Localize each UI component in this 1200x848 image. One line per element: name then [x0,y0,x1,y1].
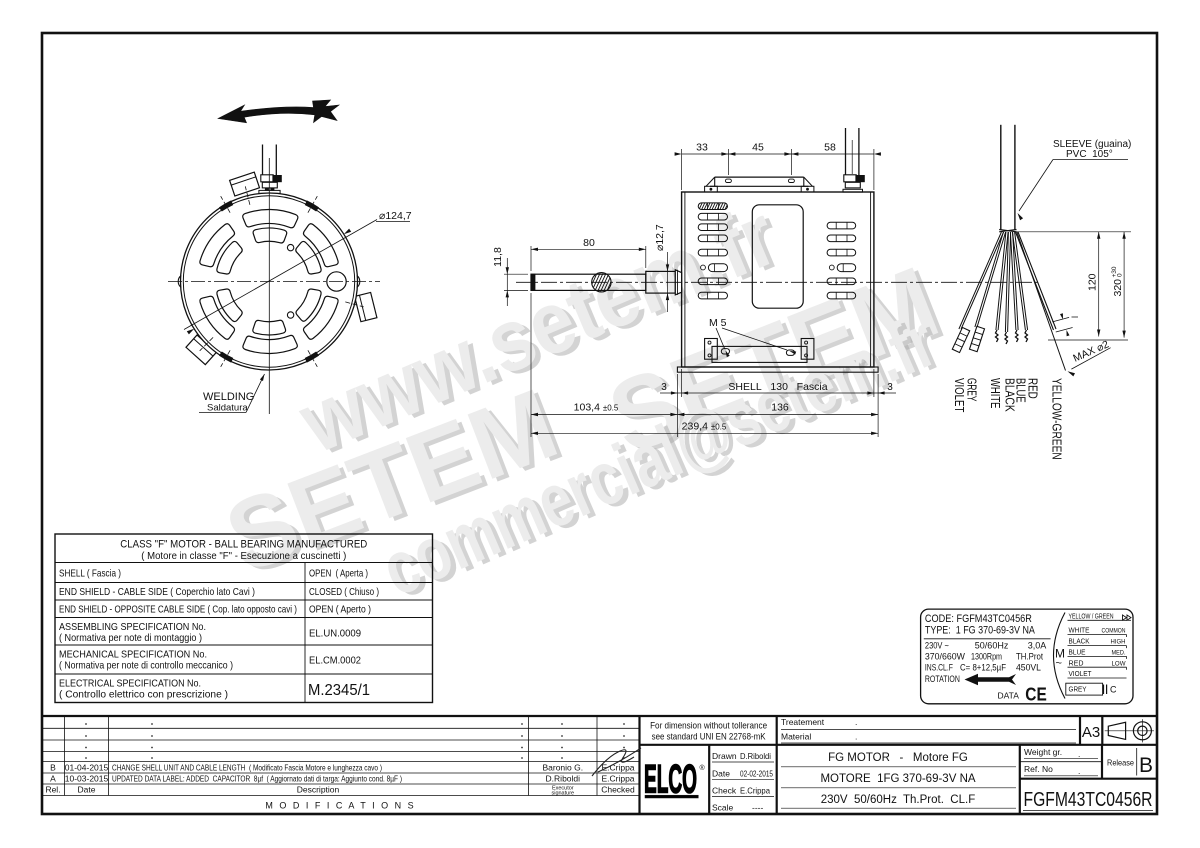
svg-text:FGFM43TC0456R: FGFM43TC0456R [1024,788,1153,811]
svg-text:( Normativa per note di contro: ( Normativa per note di controllo meccan… [59,660,233,672]
svg-text:3,0A: 3,0A [1028,641,1047,651]
svg-text:3: 3 [661,382,667,393]
svg-text:GREY: GREY [1069,685,1087,694]
svg-text:Saldatura: Saldatura [207,403,248,414]
svg-text:BLACK: BLACK [1069,637,1090,646]
svg-text:.: . [855,717,857,727]
svg-text:.: . [1078,766,1080,776]
svg-text:GREY: GREY [964,378,978,402]
svg-text:VIOLET: VIOLET [952,378,966,413]
svg-text:230V ~: 230V ~ [925,641,949,651]
svg-text:ELCO: ELCO [644,758,697,802]
svg-text:----: ---- [752,803,763,813]
svg-text:45: 45 [752,142,764,154]
svg-text:~: ~ [1056,658,1062,670]
svg-text:RED: RED [1026,378,1040,399]
svg-text:MAX ⌀2: MAX ⌀2 [1071,338,1111,364]
svg-text:230V 50/60Hz Th.Prot. CL.F: 230V 50/60Hz Th.Prot. CL.F [821,794,975,806]
svg-text:( Controllo elettrico con pres: ( Controllo elettrico con prescrizione ) [59,689,228,701]
svg-text:WHITE: WHITE [1069,626,1090,635]
svg-text:58: 58 [824,142,836,154]
svg-text:ROTATION: ROTATION [925,674,960,684]
svg-text:Checked: Checked [601,785,635,795]
svg-text:Check: Check [712,786,737,796]
svg-text:TH.Prot: TH.Prot [1016,652,1043,662]
svg-text:CE: CE [1025,685,1047,705]
svg-text:Scale: Scale [712,803,734,813]
svg-text:Material: Material [781,732,811,742]
svg-text:M O D I F I C A T I O N S: M O D I F I C A T I O N S [265,801,415,811]
svg-text:0: 0 [1117,273,1124,277]
svg-text:CLASS "F" MOTOR - BALL BEARING: CLASS "F" MOTOR - BALL BEARING MANUFACTU… [120,539,367,551]
svg-text:COMMON: COMMON [1102,628,1126,635]
svg-text:1300Rpm: 1300Rpm [971,652,1002,662]
svg-text:M.2345/1: M.2345/1 [308,682,370,699]
svg-text:A3: A3 [1082,724,1100,741]
svg-text:VIOLET: VIOLET [1069,669,1092,678]
svg-text:B: B [1139,754,1153,777]
svg-text:CLOSED ( Chiuso ): CLOSED ( Chiuso ) [309,586,379,598]
svg-text:D.Riboldi: D.Riboldi [546,774,581,784]
svg-text:( Motore in classe "F" - Esecu: ( Motore in classe "F" - Esecuzione a cu… [141,550,346,562]
svg-text:For dimension without tolleran: For dimension without tollerance [650,721,767,732]
svg-text:⌀12,7: ⌀12,7 [654,224,666,251]
svg-text:END SHIELD - CABLE SIDE ( Cope: END SHIELD - CABLE SIDE ( Coperchio lato… [59,586,255,598]
svg-text:Ref. No: Ref. No [1024,764,1053,774]
svg-text:EL.UN.0009: EL.UN.0009 [309,628,361,640]
svg-text:C: C [1110,685,1117,695]
svg-text:END SHIELD - OPPOSITE CABLE SI: END SHIELD - OPPOSITE CABLE SIDE ( Cop. … [59,604,297,616]
svg-text:CODE: FGFM43TC0456R: CODE: FGFM43TC0456R [925,613,1032,625]
svg-text:MOTORE 1FG 370-69-3V NA: MOTORE 1FG 370-69-3V NA [820,773,975,785]
svg-text:HIGH: HIGH [1111,639,1126,646]
svg-text:M 5: M 5 [709,317,727,329]
svg-text:YELLOW / GREEN: YELLOW / GREEN [1069,611,1114,620]
svg-text:E.Crippa: E.Crippa [601,774,634,784]
svg-text:33: 33 [696,142,708,154]
svg-text:SHELL ( Fascia ): SHELL ( Fascia ) [59,568,121,580]
svg-text:LOW: LOW [1112,660,1127,667]
svg-text:D.Riboldi: D.Riboldi [740,751,771,761]
svg-text:Treatement: Treatement [781,717,825,727]
svg-text:01-04-2015: 01-04-2015 [65,763,109,773]
svg-text:136: 136 [771,402,789,414]
svg-text:INS.CL.F: INS.CL.F [925,663,953,673]
svg-text:E.Crippa: E.Crippa [740,786,770,796]
svg-text:RED: RED [1069,658,1085,667]
svg-text:Description: Description [297,785,340,795]
svg-text:320: 320 [1112,279,1124,297]
svg-text:signature: signature [551,791,574,797]
svg-text:CHANGE SHELL UNIT AND CABLE LE: CHANGE SHELL UNIT AND CABLE LENGTH ( Mod… [112,764,382,773]
svg-text:02-02-2015: 02-02-2015 [740,768,773,778]
svg-text:see standard UNI EN 22768-mK: see standard UNI EN 22768-mK [652,732,767,743]
svg-text:TYPE: 1 FG 370-69-3V NA: TYPE: 1 FG 370-69-3V NA [925,625,1036,637]
svg-text:DATA: DATA [998,691,1020,701]
svg-text:YELLOW-GREEN: YELLOW-GREEN [1050,378,1064,460]
svg-text:Rel.: Rel. [45,785,60,795]
svg-text:103,4 ±0.5: 103,4 ±0.5 [574,402,619,414]
svg-text:Date: Date [712,768,730,778]
svg-text:l: l [1070,316,1080,318]
svg-text:Date: Date [78,785,96,795]
svg-text:UPDATED DATA LABEL: ADDED CAP: UPDATED DATA LABEL: ADDED CAPACITOR 8µf … [112,775,402,784]
svg-text:PVC 105°: PVC 105° [1066,149,1113,160]
svg-text:B: B [50,763,56,773]
svg-text:239,4 ±0.5: 239,4 ±0.5 [682,421,727,433]
svg-text:WELDING: WELDING [203,391,254,403]
svg-text:3: 3 [887,382,893,393]
svg-text:Release: Release [1107,758,1134,768]
svg-text:.: . [1078,749,1080,759]
svg-text:120: 120 [1087,273,1099,291]
svg-text:BLUE: BLUE [1069,648,1086,657]
svg-text:( Normativa per note di montag: ( Normativa per note di montaggio ) [59,632,202,644]
svg-text:®: ® [700,764,706,772]
svg-text:OPEN ( Aperta ): OPEN ( Aperta ) [309,568,368,580]
svg-text:OPEN ( Aperto ): OPEN ( Aperto ) [309,604,371,616]
svg-text:SHELL 130 Fascia: SHELL 130 Fascia [728,381,827,393]
svg-text:450VL: 450VL [1016,663,1041,673]
svg-text:C= 8+12,5µF: C= 8+12,5µF [960,663,1006,673]
svg-text:MED.: MED. [1112,650,1126,657]
svg-text:WHITE: WHITE [988,378,1002,409]
svg-text:FG MOTOR - Motore FG: FG MOTOR - Motore FG [828,752,968,764]
svg-text:Drawn: Drawn [712,751,737,761]
svg-text:80: 80 [583,237,595,249]
svg-text:Weight gr.: Weight gr. [1024,747,1062,757]
svg-text:.: . [855,732,857,742]
svg-text:370/660W: 370/660W [925,652,965,662]
svg-text:10-03-2015: 10-03-2015 [65,774,109,784]
svg-text:⌀124,7: ⌀124,7 [379,210,412,222]
svg-text:Baronio G.: Baronio G. [542,763,583,773]
svg-text:A: A [50,774,56,784]
svg-text:EL.CM.0002: EL.CM.0002 [309,655,361,667]
svg-text:50/60Hz: 50/60Hz [975,641,1009,651]
svg-text:BLUE: BLUE [1013,378,1027,403]
svg-text:11,8: 11,8 [492,247,504,267]
